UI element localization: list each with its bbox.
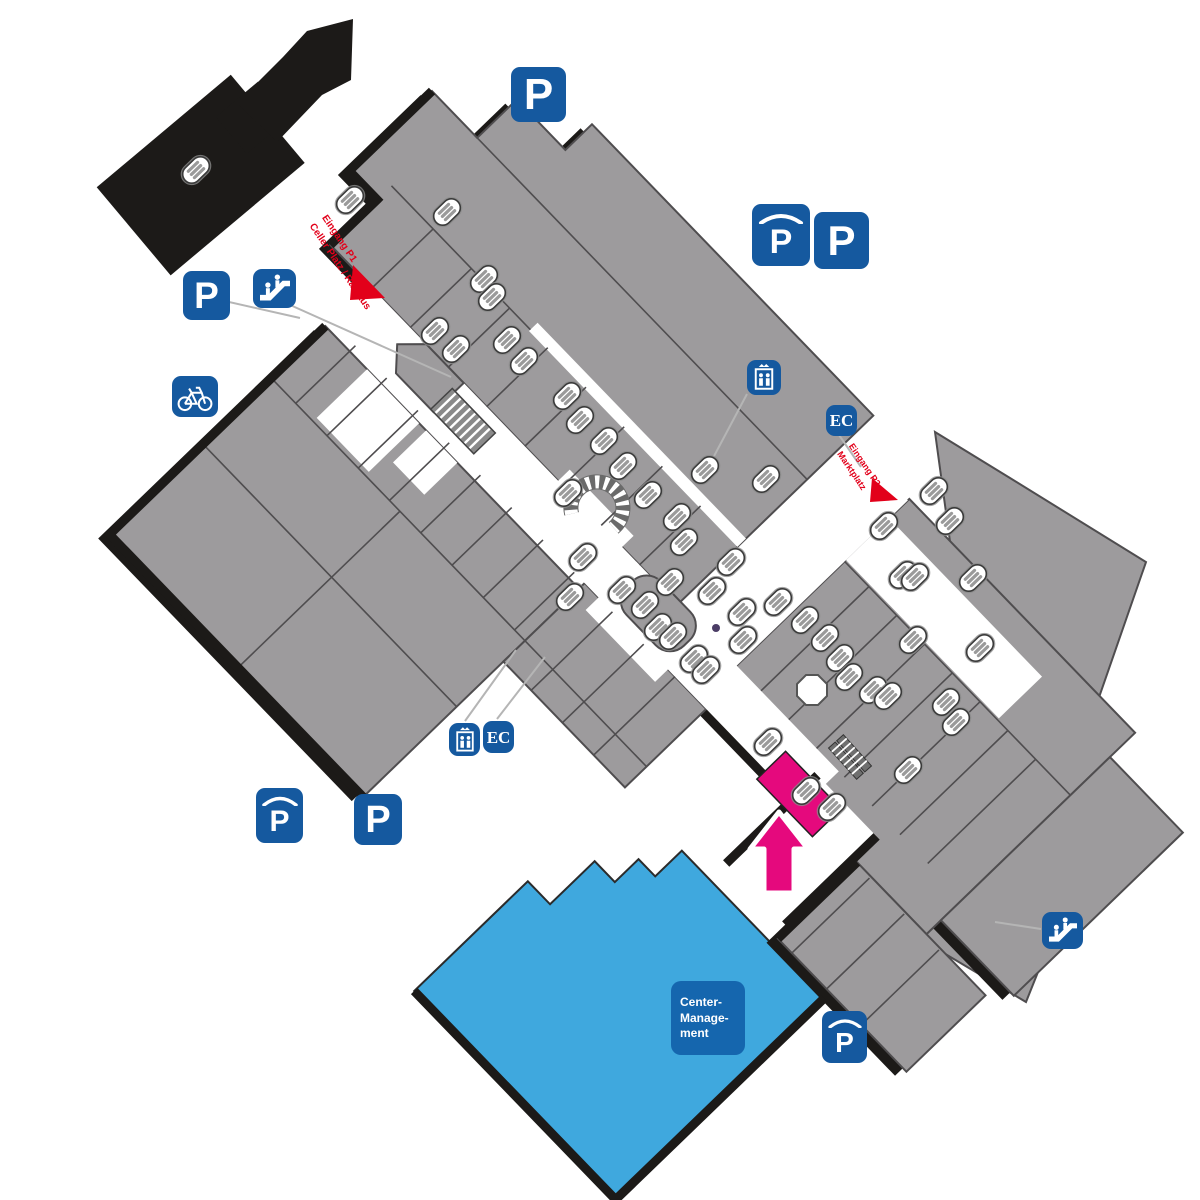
kiosk-octagon xyxy=(797,675,827,705)
escalator-sign-bottomright[interactable] xyxy=(1042,912,1083,949)
parking-sign-topright[interactable]: P xyxy=(814,212,869,269)
parking-sign-label: P xyxy=(524,73,553,117)
parking-sign-label: P xyxy=(194,277,219,314)
parking-sign-label: P xyxy=(827,220,855,262)
center-management-badge[interactable]: Center- Manage- ment xyxy=(671,981,745,1055)
center-management-line3: ment xyxy=(680,1026,739,1042)
mall-floorplan: P P P P EC EC P P xyxy=(0,0,1200,1200)
parking-sign-label: P xyxy=(835,1029,854,1057)
parking-sign-label: P xyxy=(770,225,793,259)
parking-sign-left[interactable]: P xyxy=(183,271,230,320)
ec-sign-label: EC xyxy=(487,729,511,746)
elevator-icon xyxy=(751,364,777,391)
ec-sign-mid[interactable]: EC xyxy=(826,405,857,436)
parking-sign-label: P xyxy=(365,801,390,839)
covered-parking-sign-bottom[interactable]: P xyxy=(822,1011,867,1063)
ec-sign-label: EC xyxy=(830,412,854,429)
center-management-line2: Manage- xyxy=(680,1011,739,1027)
parking-sign-left2[interactable]: P xyxy=(354,794,402,845)
parking-sign-top[interactable]: P xyxy=(511,67,566,122)
parking-sign-label: P xyxy=(269,807,289,837)
covered-parking-sign-topright[interactable]: P xyxy=(752,204,810,266)
escalator-icon xyxy=(1046,917,1080,945)
bicycle-parking-sign[interactable] xyxy=(172,376,218,417)
bicycle-icon xyxy=(175,381,215,413)
map-dot xyxy=(712,624,720,632)
floorplan-canvas xyxy=(0,0,1200,1200)
elevator-sign-bottom[interactable] xyxy=(449,723,480,756)
center-management-line1: Center- xyxy=(680,995,739,1011)
covered-parking-sign-left[interactable]: P xyxy=(256,788,303,843)
elevator-sign-mid[interactable] xyxy=(747,360,781,395)
ec-sign-bottom[interactable]: EC xyxy=(483,721,514,753)
escalator-icon xyxy=(257,274,293,304)
elevator-icon xyxy=(453,727,477,753)
escalator-sign-topleft[interactable] xyxy=(253,269,296,308)
